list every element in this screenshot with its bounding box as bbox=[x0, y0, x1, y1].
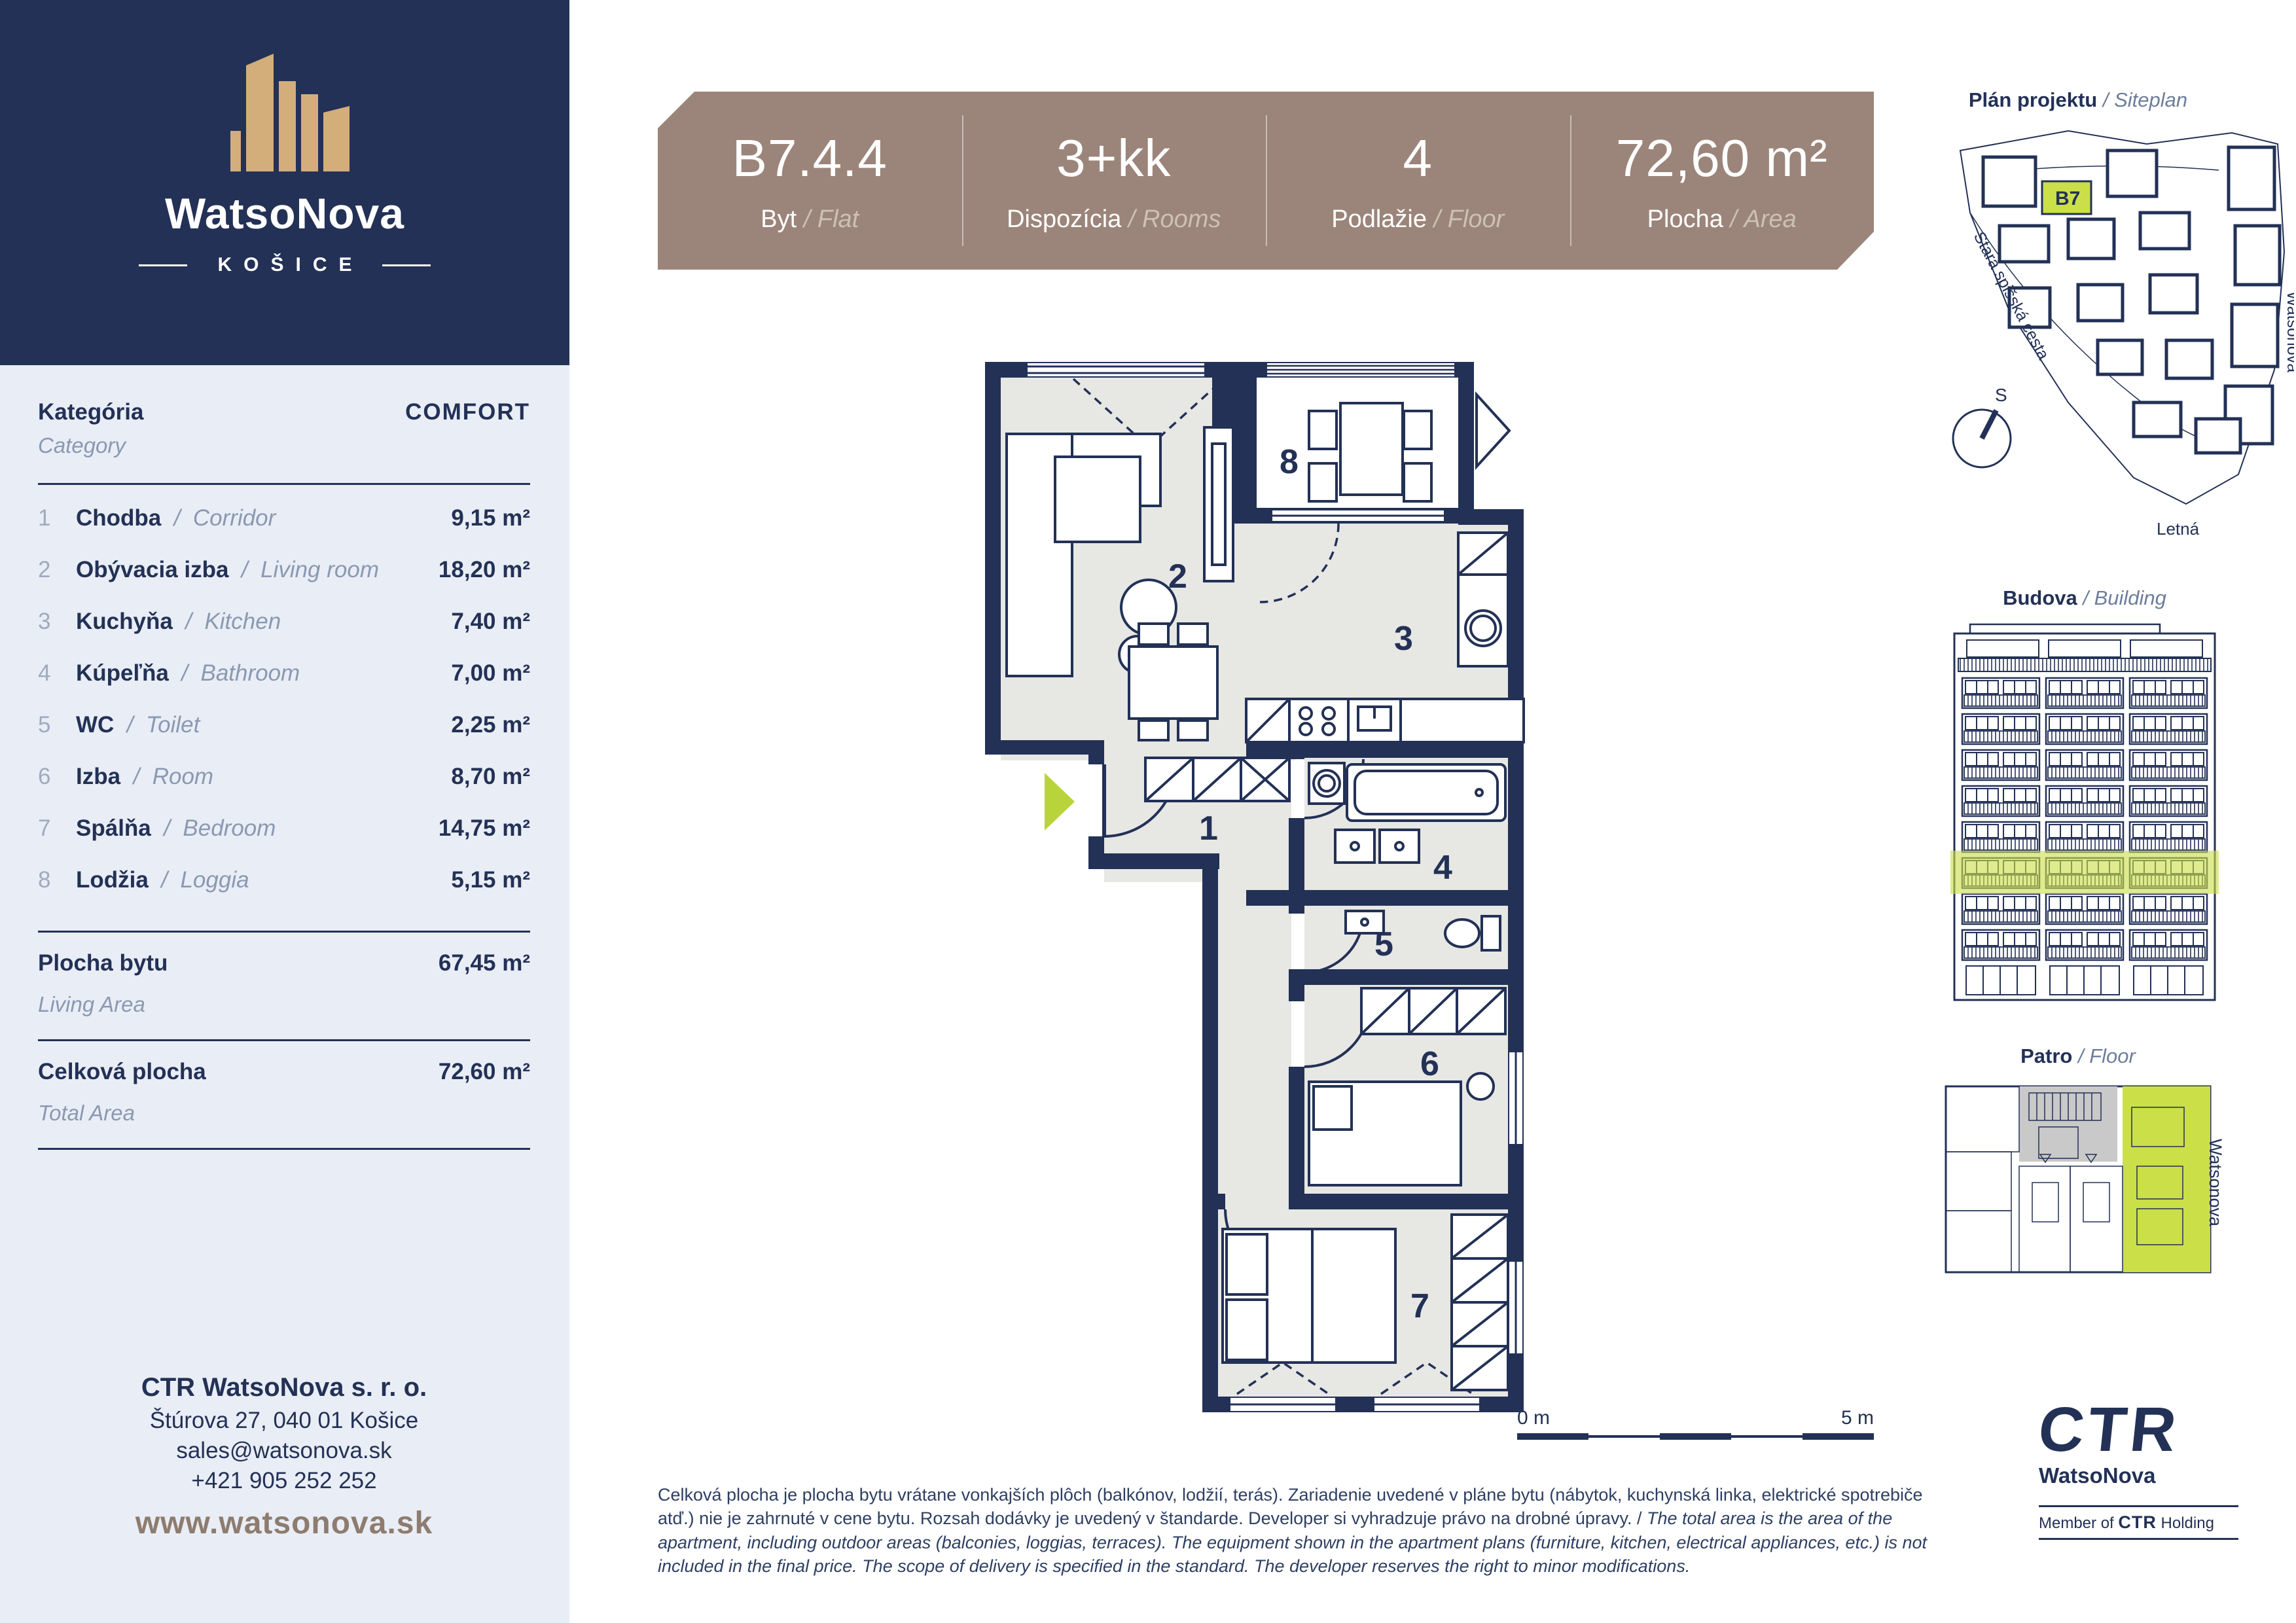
room-name: Kúpeľňa / Bathroom bbox=[76, 660, 451, 687]
category-label-en: Category bbox=[38, 433, 530, 458]
room-area: 2,25 m² bbox=[451, 712, 530, 738]
room-number-label: 7 bbox=[1410, 1287, 1429, 1325]
room-number-label: 2 bbox=[1168, 558, 1187, 596]
scale-start-label: 0 m bbox=[1517, 1407, 1550, 1429]
building-title: Budova / Building bbox=[1950, 586, 2219, 610]
scale-segment bbox=[1517, 1433, 1588, 1440]
divider bbox=[38, 931, 530, 933]
header-cell-flat: B7.4.4 Byt / Flat bbox=[658, 92, 962, 270]
room-number-label: 1 bbox=[1199, 810, 1218, 847]
building-elevation bbox=[1950, 620, 2219, 1003]
room-number-label: 5 bbox=[1374, 925, 1393, 963]
room-list-item: 3 Kuchyňa / Kitchen 7,40 m² bbox=[38, 609, 530, 660]
scale-segment bbox=[1660, 1433, 1731, 1440]
website-link[interactable]: www.watsonova.sk bbox=[38, 1505, 530, 1541]
room-name: Lodžia / Loggia bbox=[76, 867, 451, 893]
highlighted-floor-band bbox=[1950, 851, 2219, 894]
company-name: CTR WatsoNova s. r. o. bbox=[38, 1373, 530, 1402]
living-area-row: Plocha bytu 67,45 m² bbox=[38, 950, 530, 976]
room-name: WC / Toilet bbox=[76, 712, 451, 738]
apartment-header-bar: B7.4.4 Byt / Flat 3+kk Dispozícia / Room… bbox=[658, 92, 1874, 270]
category-row: Kategória COMFORT bbox=[38, 399, 530, 425]
total-area-label-en: Total Area bbox=[38, 1101, 530, 1126]
room-list-item: 5 WC / Toilet 2,25 m² bbox=[38, 712, 530, 764]
room-number-label: 6 bbox=[1420, 1045, 1439, 1083]
flat-id: B7.4.4 bbox=[732, 128, 888, 188]
sidebar: WatsoNova KOŠICE Kategória COMFORT Categ… bbox=[0, 0, 569, 1623]
street-label-bottom: Letná bbox=[2157, 519, 2200, 539]
category-label: Kategória bbox=[38, 399, 143, 425]
building-logo-icon bbox=[216, 47, 353, 178]
room-number: 1 bbox=[38, 505, 76, 531]
company-phone[interactable]: +421 905 252 252 bbox=[38, 1468, 530, 1494]
divider bbox=[38, 1148, 530, 1150]
room-name: Izba / Room bbox=[76, 764, 451, 790]
room-number: 7 bbox=[38, 815, 76, 842]
developer-logo-block: CTR WatsoNova Member of CTR Holding bbox=[2039, 1402, 2238, 1540]
room-list-item: 8 Lodžia / Loggia 5,15 m² bbox=[38, 867, 530, 919]
disclaimer-text: Celková plocha je plocha bytu vrátane vo… bbox=[658, 1483, 1964, 1578]
floorplate-street-label: Watsonova bbox=[2205, 1139, 2225, 1226]
room-number-label: 4 bbox=[1433, 849, 1452, 887]
ctr-brand: WatsoNova bbox=[2039, 1463, 2238, 1488]
ctr-holding-line: Member of CTR Holding bbox=[2039, 1505, 2238, 1540]
highlighted-building-label: B7 bbox=[2055, 188, 2080, 209]
room-number: 5 bbox=[38, 712, 76, 738]
divider bbox=[38, 1039, 530, 1041]
street-label-right: Watsonova bbox=[2284, 291, 2294, 372]
siteplan-map: B7 Stará spišská cesta Watsonova Letná S bbox=[1937, 121, 2294, 546]
floor-value: 4 bbox=[1403, 128, 1433, 188]
ctr-logo: CTR bbox=[2036, 1402, 2241, 1458]
company-email[interactable]: sales@watsonova.sk bbox=[38, 1438, 530, 1464]
room-number: 3 bbox=[38, 609, 76, 635]
compass-icon: S bbox=[1953, 385, 2011, 467]
living-area-value: 67,45 m² bbox=[439, 950, 530, 976]
room-list-item: 1 Chodba / Corridor 9,15 m² bbox=[38, 505, 530, 557]
room-area: 5,15 m² bbox=[451, 867, 530, 893]
brand-header: WatsoNova KOŠICE bbox=[0, 0, 569, 365]
room-list-item: 7 Spálňa / Bedroom 14,75 m² bbox=[38, 815, 530, 867]
room-area: 18,20 m² bbox=[439, 557, 530, 583]
compass-north-label: S bbox=[1995, 385, 2007, 405]
room-name: Obývacia izba / Living room bbox=[76, 557, 439, 583]
room-list-item: 4 Kúpeľňa / Bathroom 7,00 m² bbox=[38, 660, 530, 712]
company-address: Štúrova 27, 040 01 Košice bbox=[38, 1408, 530, 1434]
room-name: Chodba / Corridor bbox=[76, 505, 451, 531]
total-area-row: Celková plocha 72,60 m² bbox=[38, 1059, 530, 1085]
scale-segment bbox=[1588, 1435, 1660, 1438]
room-number: 2 bbox=[38, 557, 76, 583]
room-area: 7,40 m² bbox=[451, 609, 530, 635]
header-cell-rooms: 3+kk Dispozícia / Rooms bbox=[962, 92, 1266, 270]
room-number: 6 bbox=[38, 764, 76, 790]
total-area-value: 72,60 m² bbox=[439, 1059, 530, 1085]
scale-segment bbox=[1803, 1433, 1874, 1440]
scale-end-label: 5 m bbox=[1841, 1407, 1874, 1429]
disposition-value: 3+kk bbox=[1056, 128, 1171, 188]
room-number-label: 3 bbox=[1394, 620, 1413, 658]
ctr-holding-logo: CTR bbox=[2118, 1512, 2157, 1532]
entrance-arrow-icon bbox=[1045, 773, 1075, 830]
room-number: 4 bbox=[38, 660, 76, 687]
room-name: Kuchyňa / Kitchen bbox=[76, 609, 451, 635]
room-area: 7,00 m² bbox=[451, 660, 530, 687]
decor-line bbox=[382, 264, 431, 266]
header-cell-floor: 4 Podlažie / Floor bbox=[1266, 92, 1570, 270]
apartment-card-page: WatsoNova KOŠICE Kategória COMFORT Categ… bbox=[0, 0, 2296, 1623]
room-list-item: 2 Obývacia izba / Living room 18,20 m² bbox=[38, 557, 530, 609]
contact-block: CTR WatsoNova s. r. o. Štúrova 27, 040 0… bbox=[38, 1373, 530, 1494]
room-list-item: 6 Izba / Room 8,70 m² bbox=[38, 764, 530, 815]
room-name: Spálňa / Bedroom bbox=[76, 815, 439, 842]
divider bbox=[38, 483, 530, 485]
room-list: 1 Chodba / Corridor 9,15 m² 2 Obývacia i… bbox=[38, 505, 530, 919]
header-cell-area: 72,60 m² Plocha / Area bbox=[1570, 92, 1874, 270]
area-value: 72,60 m² bbox=[1616, 128, 1828, 188]
room-area: 14,75 m² bbox=[439, 815, 530, 842]
scale-segment bbox=[1731, 1435, 1803, 1438]
brand-city: KOŠICE bbox=[206, 254, 363, 276]
siteplan-title: Plán projektu / Siteplan bbox=[1937, 88, 2219, 112]
brand-city-row: KOŠICE bbox=[0, 254, 569, 276]
room-number-label: 8 bbox=[1280, 443, 1299, 481]
room-area: 9,15 m² bbox=[451, 505, 530, 531]
floorplate-title: Patro / Floor bbox=[1941, 1044, 2215, 1068]
decor-line bbox=[139, 264, 187, 266]
scale-bar: 0 m 5 m bbox=[1517, 1407, 1874, 1440]
floorplate-plan bbox=[1941, 1081, 2215, 1277]
room-area: 8,70 m² bbox=[451, 764, 530, 790]
room-number: 8 bbox=[38, 867, 76, 893]
living-area-label-en: Living Area bbox=[38, 992, 530, 1017]
category-value: COMFORT bbox=[405, 399, 530, 425]
floor-plan: 1 2 3 4 5 6 7 8 bbox=[982, 359, 1532, 1414]
brand-name: WatsoNova bbox=[0, 188, 569, 238]
